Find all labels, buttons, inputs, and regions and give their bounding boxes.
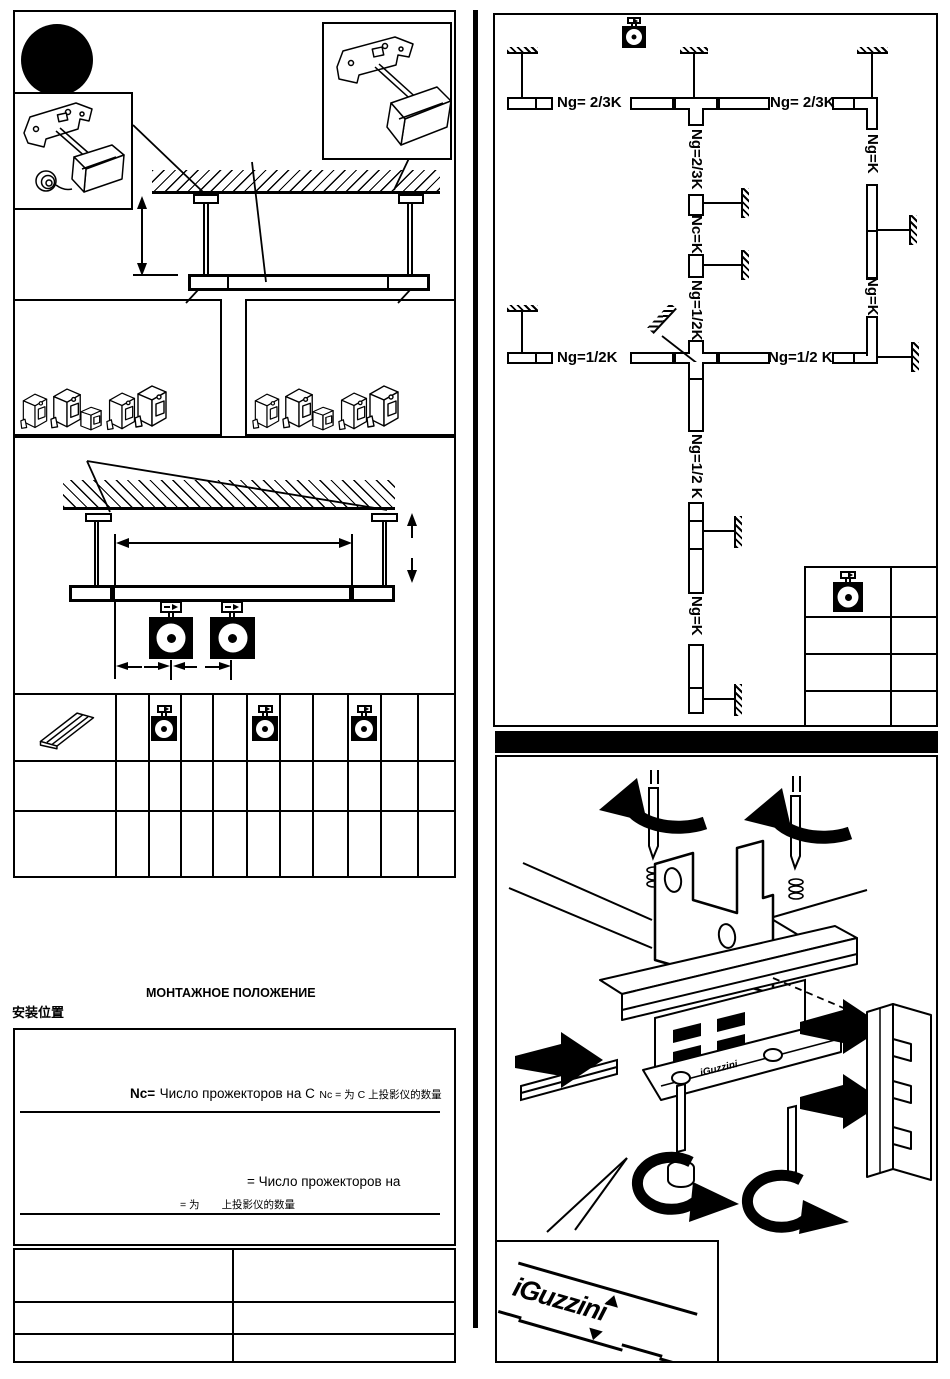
screw-hole — [764, 1049, 782, 1061]
iguzzini-logo: iGuzzini — [495, 1260, 705, 1363]
clamp-icon-small — [310, 405, 336, 431]
screw-bottom-left — [668, 1084, 694, 1187]
screw-bottom-right — [788, 1106, 796, 1174]
projector-symbol — [151, 705, 177, 741]
bracket-with-cable-drawing — [16, 95, 130, 207]
projector-symbol — [622, 17, 646, 48]
projector-lens-dot — [228, 634, 237, 643]
track-label: Ng=1/2K — [557, 350, 617, 366]
projector-lens — [626, 29, 642, 45]
track-label-vertical: Ng=1/2 K — [688, 434, 704, 499]
clamp-icon — [252, 389, 282, 431]
projector-symbol — [252, 705, 278, 741]
channel-profile-icon — [35, 700, 99, 750]
track-joint-tick — [387, 277, 389, 288]
adapter-tail — [164, 606, 170, 608]
projector-lens-dot — [161, 726, 167, 732]
logo-bottom-line — [621, 1343, 662, 1357]
t-junction-stub — [688, 108, 704, 126]
clamp-icon-small — [78, 405, 104, 431]
track-adapter-icon — [160, 601, 182, 613]
adapter-arrow — [364, 706, 369, 712]
adapter-top-icon — [627, 17, 641, 24]
track-label-vertical: Nc=K — [688, 215, 704, 254]
track-label-vertical: Ng=2/3K — [688, 129, 704, 189]
detail-inset-left — [13, 92, 133, 210]
adapter-arrow — [633, 18, 638, 24]
projector-lens — [155, 720, 173, 738]
screw-hole — [672, 1072, 690, 1084]
adapter-arrow — [848, 572, 853, 578]
adapter-arrow — [172, 604, 178, 610]
callout-line — [87, 461, 387, 510]
rotation-arrow-cw — [747, 1175, 849, 1234]
projector-body — [833, 582, 863, 612]
projector-lens-dot — [632, 35, 637, 40]
track-label: Ng= 2/3K — [557, 95, 622, 111]
projector-symbol — [351, 705, 377, 741]
clamp-icon — [134, 381, 170, 429]
rail-edge-line — [523, 863, 652, 920]
adapter-top-icon — [357, 705, 372, 713]
callout-line — [133, 125, 203, 192]
cross-stub-up — [688, 340, 704, 354]
track-label-vertical: Ng=K — [864, 134, 880, 174]
logo-bottom-line — [659, 1357, 681, 1363]
track-label: Ng= 2/3K — [770, 95, 835, 111]
projector-lens — [157, 624, 186, 653]
projector-lens — [218, 624, 247, 653]
projector-body — [252, 716, 278, 741]
bracket-drawing — [325, 25, 451, 159]
logo-callout-line — [547, 1158, 627, 1232]
track-label-vertical: Ng=1/2K — [688, 280, 704, 340]
projector-lens — [355, 720, 373, 738]
projector-lens-dot — [845, 594, 852, 601]
projector-symbol — [833, 571, 863, 612]
projector-body — [622, 26, 646, 48]
projector-body — [351, 716, 377, 741]
projector-body — [149, 617, 193, 659]
track-label-vertical: Ng=K — [688, 596, 704, 636]
adapter-arrow — [233, 604, 239, 610]
adapter-top-icon — [157, 705, 172, 713]
projector-lens-dot — [262, 726, 268, 732]
tick-mark — [186, 290, 198, 303]
projector-symbol — [149, 617, 193, 659]
projector-lens — [838, 587, 859, 608]
track-segment — [866, 316, 878, 356]
adapter-tail — [225, 606, 231, 608]
clamp-icon — [366, 381, 402, 429]
detail-inset-right — [322, 22, 452, 160]
corner-stub — [866, 108, 878, 130]
logo-bottom-line — [518, 1319, 623, 1352]
projector-body — [210, 617, 255, 659]
tick-mark — [398, 290, 410, 303]
callout-line — [252, 162, 266, 282]
logo-callout-line — [575, 1158, 627, 1230]
projector-lens-dot — [167, 634, 176, 643]
track-label-vertical: Ng=K — [864, 276, 880, 316]
projector-lens-dot — [361, 726, 367, 732]
callout-line — [87, 461, 110, 512]
track-adapter-icon — [221, 601, 243, 613]
projector-symbol — [210, 617, 255, 659]
track-label: Ng=1/2 K — [768, 350, 833, 366]
adapter-top-icon — [258, 705, 273, 713]
clamp-icon — [20, 389, 50, 431]
track-end-block — [349, 587, 354, 600]
projector-body — [151, 716, 177, 741]
pointer-line — [770, 890, 867, 918]
cross-stub-down — [688, 362, 704, 378]
adapter-arrow — [265, 706, 270, 712]
logo-inset-box: iGuzzini — [495, 1240, 719, 1363]
adapter-arrow — [164, 706, 169, 712]
track-end-block — [110, 587, 115, 600]
assembly-drawing: iGuzzini — [505, 768, 935, 1234]
projector-lens — [256, 720, 274, 738]
instruction-sheet-page: МОНТАЖНОЕ ПОЛОЖЕНИЕ 安装位置 Nc= Число проже… — [0, 0, 950, 1379]
adapter-top-icon — [840, 571, 856, 579]
track-joint-tick — [227, 277, 229, 288]
rail-edge-line — [509, 888, 652, 948]
